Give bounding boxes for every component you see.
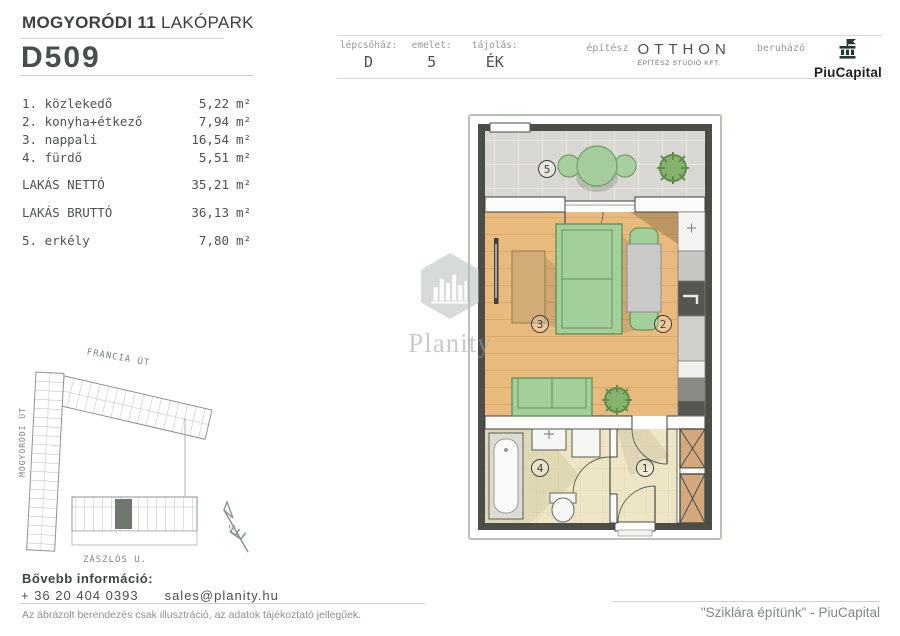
dining-set: [627, 228, 661, 330]
gross-unit: m²: [229, 204, 262, 222]
room-name: 4. fürdő: [22, 149, 82, 167]
header-divider: [20, 38, 224, 39]
piucapital-building-icon: [833, 38, 863, 60]
floor-label: emelet:: [400, 40, 463, 51]
architect-name: OTTHON: [637, 41, 730, 58]
gross-area-row: LAKÁS BRUTTÓ 36,13 m²: [22, 204, 262, 222]
compass: É: [224, 502, 251, 552]
room-number-2: 2: [660, 318, 667, 331]
loveseat: [512, 378, 592, 416]
floor-stat: emelet: 5: [400, 36, 463, 78]
orientation-stat: tájolás: ÉK: [463, 36, 526, 78]
balcony-unit: m²: [229, 232, 262, 250]
room-area: 5,22: [179, 95, 229, 113]
room-name: 2. konyha+étkező: [22, 113, 142, 131]
room-list: 1. közlekedő 5,22 m² 2. konyha+étkező 7,…: [22, 95, 262, 250]
living-plant: [602, 385, 632, 415]
architect-label: építész: [586, 41, 628, 78]
developer-block: beruházó PiuCapital: [757, 36, 882, 78]
developer-logo: PiuCapital: [814, 38, 882, 78]
net-unit: m²: [229, 176, 262, 194]
entry-step: [618, 530, 652, 536]
project-title-bold: MOGYORÓDI 11: [22, 13, 156, 32]
balcony-area: 7,80: [179, 232, 229, 250]
contact-line: + 36 20 404 0393sales@planity.hu: [21, 588, 305, 603]
street-label-left: MOGYORÓDI ÚT: [16, 407, 27, 477]
disclaimer-text: Az ábrázolt berendezés csak illusztráció…: [22, 609, 361, 621]
kitchen-counter: [678, 212, 705, 416]
room-unit: m²: [229, 131, 262, 149]
staircase-value: D: [337, 53, 400, 71]
company-slogan: "Sziklára építünk" - PiuCapital: [701, 605, 880, 620]
architect-block: építész OTTHON ÉPÍTÉSZ STÚDIÓ KFT.: [586, 36, 730, 78]
site-plan: FRANCIA ÚT MOGYORÓDI ÚT ZÁSZLÓS U. É: [12, 342, 268, 570]
phone-number: + 36 20 404 0393: [21, 588, 139, 603]
sofa: [556, 224, 622, 334]
bottom-wing: [72, 497, 197, 531]
balcony-label: 5. erkély: [22, 232, 90, 250]
street-label-bottom: ZÁSZLÓS U.: [83, 553, 147, 565]
room-row: 3. nappali 16,54 m²: [22, 131, 262, 149]
room-area: 7,94: [179, 113, 229, 131]
room-area: 16,54: [179, 131, 229, 149]
highlighted-unit: [115, 499, 132, 529]
net-area: 35,21: [179, 176, 229, 194]
room-unit: m²: [229, 113, 262, 131]
room-number-1: 1: [642, 462, 649, 475]
floor-value: 5: [400, 53, 463, 71]
project-title: MOGYORÓDI 11 LAKÓPARK: [22, 13, 254, 33]
gross-area: 36,13: [179, 204, 229, 222]
washing-machine: [572, 429, 600, 457]
staircase-stat: lépcsőház: D: [337, 36, 400, 78]
staircase-label: lépcsőház:: [337, 40, 400, 51]
footer-divider-right: [612, 601, 880, 602]
developer-label: beruházó: [757, 41, 805, 78]
orientation-value: ÉK: [463, 53, 526, 71]
room-name: 1. közlekedő: [22, 95, 112, 113]
project-title-rest: LAKÓPARK: [156, 13, 254, 32]
watermark-hexagon-icon: [419, 252, 481, 320]
room-row: 4. fürdő 5,51 m²: [22, 149, 262, 167]
unit-id: D509: [21, 41, 101, 75]
room-area: 5,51: [179, 149, 229, 167]
bathtub: [489, 433, 523, 519]
net-label: LAKÁS NETTÓ: [22, 176, 105, 194]
bath-sink: [532, 429, 566, 450]
site-plan-svg: FRANCIA ÚT MOGYORÓDI ÚT ZÁSZLÓS U. É: [12, 342, 268, 570]
room-number-3: 3: [537, 318, 544, 331]
datasheet-page: MOGYORÓDI 11 LAKÓPARK D509 lépcsőház: D …: [0, 0, 900, 636]
floor-plan-svg: 5 3 2 4 1: [470, 116, 720, 538]
street-label-top: FRANCIA ÚT: [86, 346, 151, 369]
room-row: 1. közlekedő 5,22 m²: [22, 95, 262, 113]
watermark-text: Planity: [394, 328, 506, 359]
room-number-5: 5: [544, 163, 551, 176]
room-unit: m²: [229, 149, 262, 167]
unit-id-divider: [20, 75, 253, 76]
room-unit: m²: [229, 95, 262, 113]
balcony-plant: [657, 152, 689, 184]
email-address: sales@planity.hu: [165, 588, 279, 603]
balcony-row: 5. erkély 7,80 m²: [22, 232, 262, 250]
room-row: 2. konyha+étkező 7,94 m²: [22, 113, 262, 131]
gross-label: LAKÁS BRUTTÓ: [22, 204, 112, 222]
developer-name: PiuCapital: [814, 65, 882, 80]
building-outline: [27, 372, 212, 551]
compass-north-label: É: [224, 521, 251, 545]
sideboard: [512, 251, 545, 323]
watermark: Planity: [394, 252, 506, 359]
floor-plan: 5 3 2 4 1: [468, 114, 722, 540]
shafts: [677, 429, 705, 523]
unit-info-bar: lépcsőház: D emelet: 5 tájolás: ÉK építé…: [337, 35, 882, 79]
architect-subtitle: ÉPÍTÉSZ STÚDIÓ KFT.: [637, 60, 730, 67]
net-area-row: LAKÁS NETTÓ 35,21 m²: [22, 176, 262, 194]
balcony-opening: [490, 123, 530, 132]
footer-divider-left: [20, 603, 425, 604]
room-name: 3. nappali: [22, 131, 97, 149]
toilet: [550, 493, 576, 522]
room-number-4: 4: [537, 462, 544, 475]
orientation-label: tájolás:: [463, 40, 526, 51]
more-info-label: Bővebb információ:: [22, 571, 153, 586]
